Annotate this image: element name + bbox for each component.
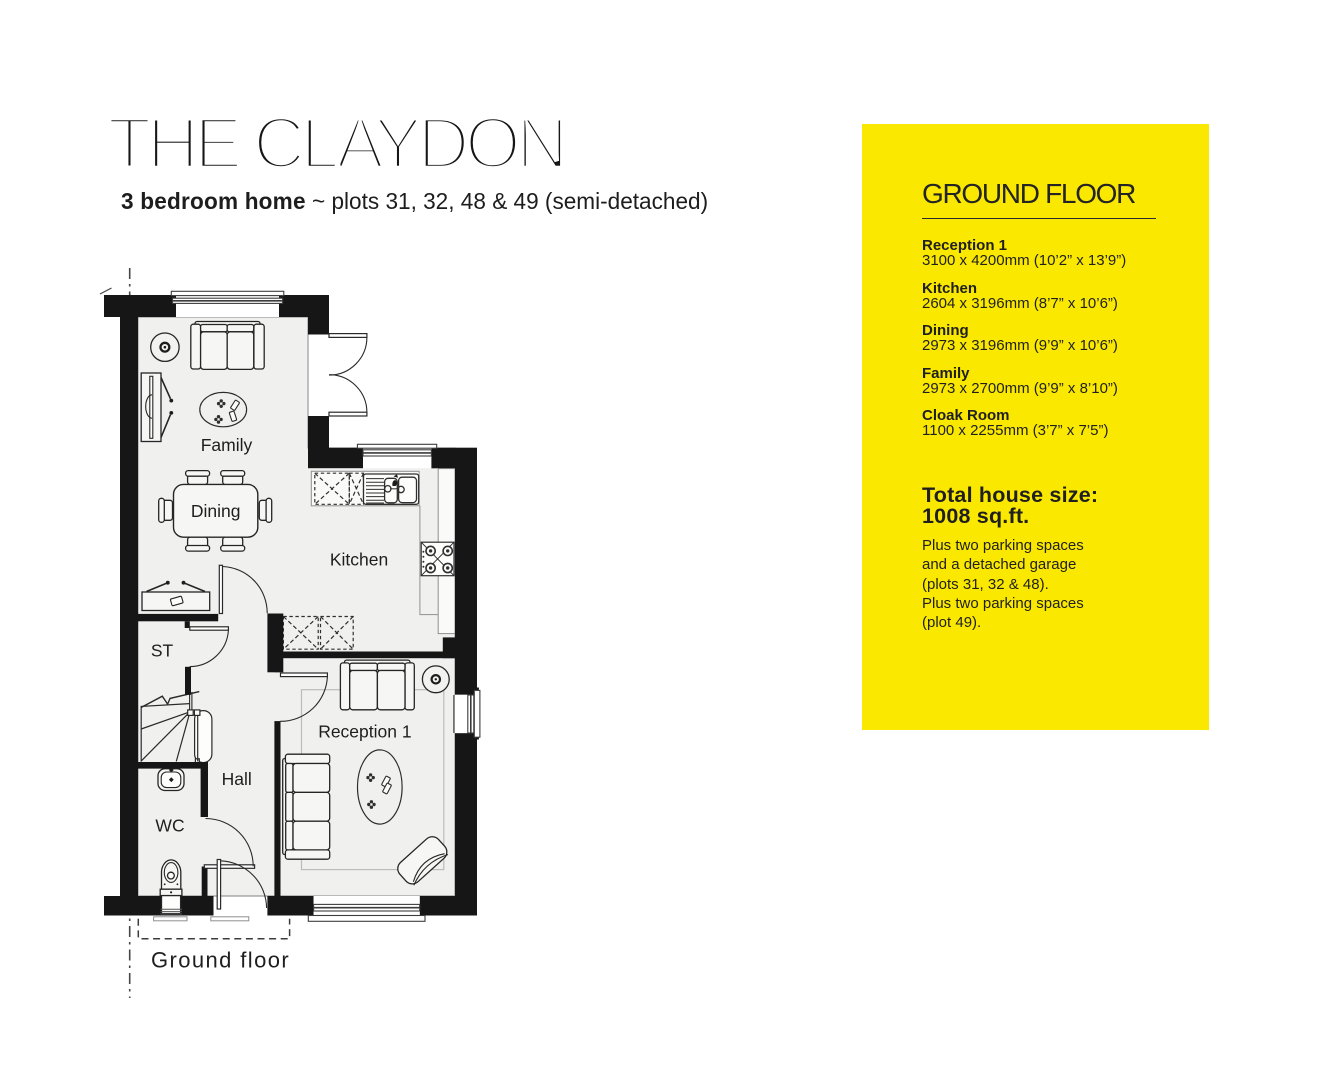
svg-text:Kitchen: Kitchen (330, 550, 388, 570)
svg-text:Family: Family (201, 435, 253, 455)
svg-text:Reception 1: Reception 1 (318, 721, 411, 741)
svg-text:Dining: Dining (191, 501, 241, 521)
svg-text:WC: WC (155, 816, 184, 836)
svg-text:Hall: Hall (222, 769, 252, 789)
svg-text:ST: ST (151, 641, 174, 661)
svg-text:Ground floor: Ground floor (151, 948, 290, 973)
